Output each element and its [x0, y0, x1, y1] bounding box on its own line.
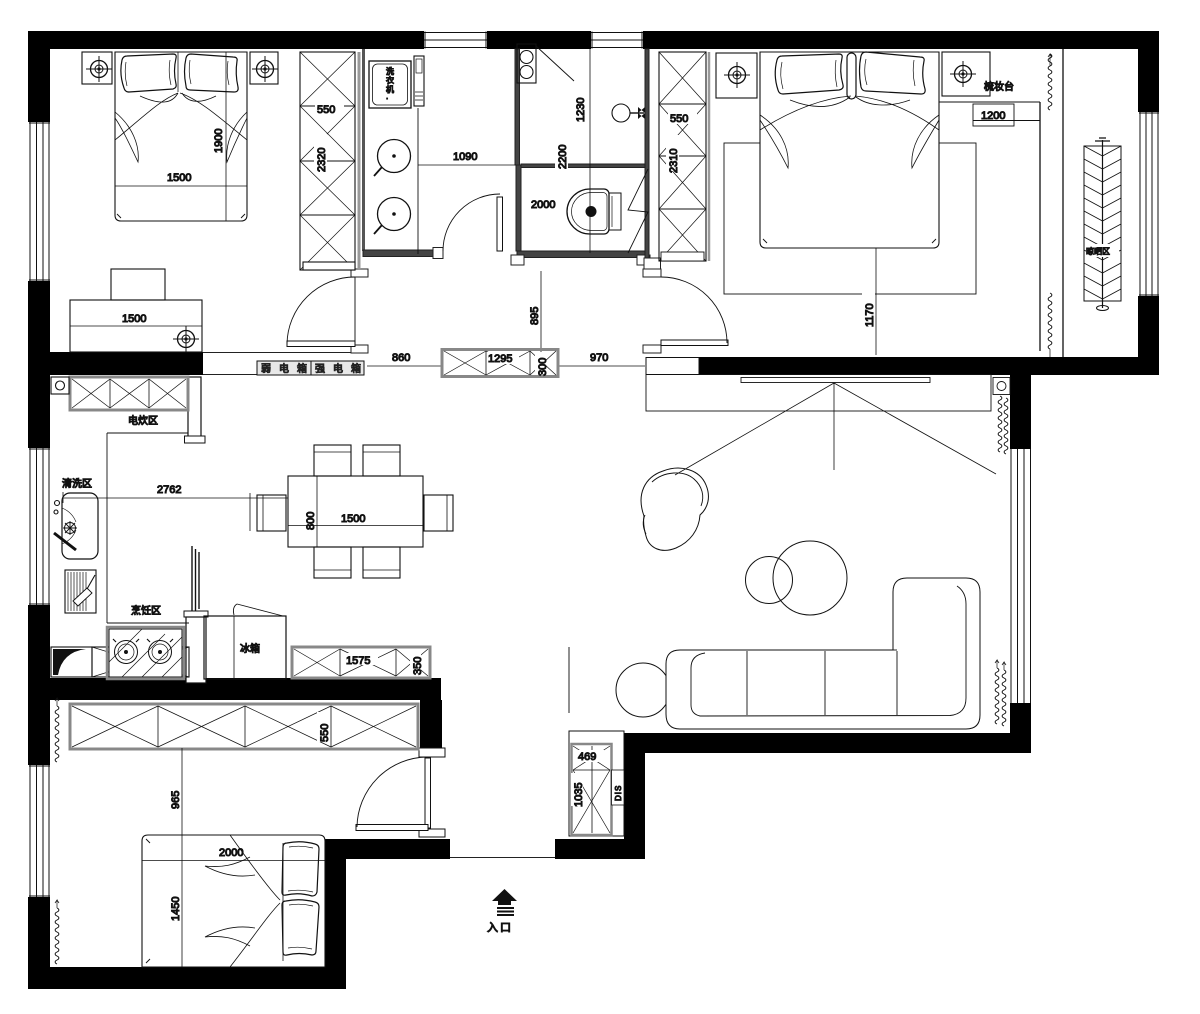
- svg-text:1900: 1900: [213, 129, 225, 153]
- svg-text:冰箱: 冰箱: [240, 642, 260, 655]
- svg-text:电炊区: 电炊区: [128, 414, 158, 427]
- svg-text:1090: 1090: [453, 151, 477, 163]
- svg-text:弱电箱: 弱电箱: [261, 362, 307, 375]
- svg-text:清洗区: 清洗区: [62, 477, 92, 490]
- svg-text:550: 550: [319, 724, 331, 742]
- svg-text:895: 895: [529, 307, 541, 325]
- svg-text:860: 860: [392, 352, 410, 364]
- svg-text:1200: 1200: [981, 110, 1005, 122]
- svg-text:洗衣机.: 洗衣机.: [386, 66, 394, 101]
- svg-text:550: 550: [670, 113, 688, 125]
- svg-text:1500: 1500: [341, 513, 365, 525]
- svg-text:烹饪区: 烹饪区: [131, 604, 161, 617]
- svg-text:1575: 1575: [346, 655, 370, 667]
- svg-text:970: 970: [590, 352, 608, 364]
- svg-text:1500: 1500: [167, 172, 191, 184]
- svg-text:2000: 2000: [531, 199, 555, 211]
- svg-text:300: 300: [537, 358, 549, 376]
- svg-text:2320: 2320: [316, 148, 328, 172]
- svg-text:2310: 2310: [668, 149, 680, 173]
- svg-text:1500: 1500: [122, 313, 146, 325]
- svg-text:350: 350: [412, 657, 424, 675]
- svg-text:800: 800: [305, 512, 317, 530]
- svg-text:965: 965: [170, 791, 182, 809]
- svg-text:DIS: DIS: [614, 785, 623, 801]
- svg-text:1035: 1035: [573, 783, 585, 807]
- svg-text:强电箱: 强电箱: [315, 362, 361, 375]
- svg-text:入口: 入口: [487, 922, 513, 934]
- svg-text:2200: 2200: [557, 145, 569, 169]
- svg-text:1230: 1230: [575, 98, 587, 122]
- svg-text:1450: 1450: [170, 897, 182, 921]
- svg-text:晾晒区: 晾晒区: [1086, 246, 1110, 256]
- svg-text:1170: 1170: [864, 303, 876, 327]
- svg-text:550: 550: [317, 104, 335, 116]
- svg-text:梳妆台: 梳妆台: [984, 80, 1014, 93]
- svg-text:469: 469: [578, 751, 596, 763]
- svg-text:1295: 1295: [488, 353, 512, 365]
- svg-text:2762: 2762: [157, 484, 181, 496]
